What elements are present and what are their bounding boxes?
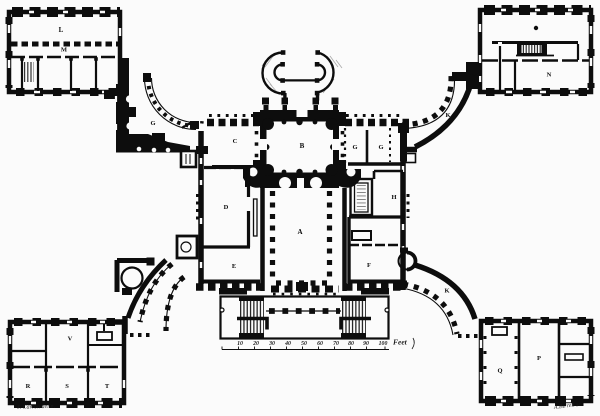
svg-text:60: 60 [317,341,323,347]
svg-text:40: 40 [284,341,291,347]
svg-text:N: N [547,72,552,79]
svg-text:10: 10 [237,341,243,347]
svg-text:50: 50 [301,341,307,347]
svg-text:L: L [59,26,64,34]
svg-text:K: K [444,288,449,295]
svg-text:90: 90 [363,341,369,347]
svg-text:V: V [68,336,73,343]
svg-text:G: G [378,144,383,151]
svg-text:B: B [300,142,305,150]
svg-text:Feet: Feet [393,338,408,347]
svg-text:E: E [232,263,236,270]
svg-text:100: 100 [379,341,388,347]
svg-text:Q: Q [497,368,502,375]
svg-text:R: R [26,383,31,390]
svg-text:F: F [367,262,371,269]
svg-text:H: H [391,194,396,201]
svg-text:80: 80 [348,341,354,347]
svg-text:D: D [224,204,229,211]
svg-text:20: 20 [252,341,259,347]
svg-text:G: G [150,120,155,127]
svg-text:30: 30 [268,341,275,347]
svg-text:A: A [297,228,302,236]
svg-text:K: K [445,112,450,119]
svg-text:S: S [65,383,69,390]
svg-text:M: M [61,47,67,54]
svg-text:P: P [537,355,541,362]
svg-text:T: T [105,383,110,390]
svg-text:70: 70 [333,341,339,347]
svg-text:G: G [352,144,357,151]
svg-text:C: C [233,138,238,145]
